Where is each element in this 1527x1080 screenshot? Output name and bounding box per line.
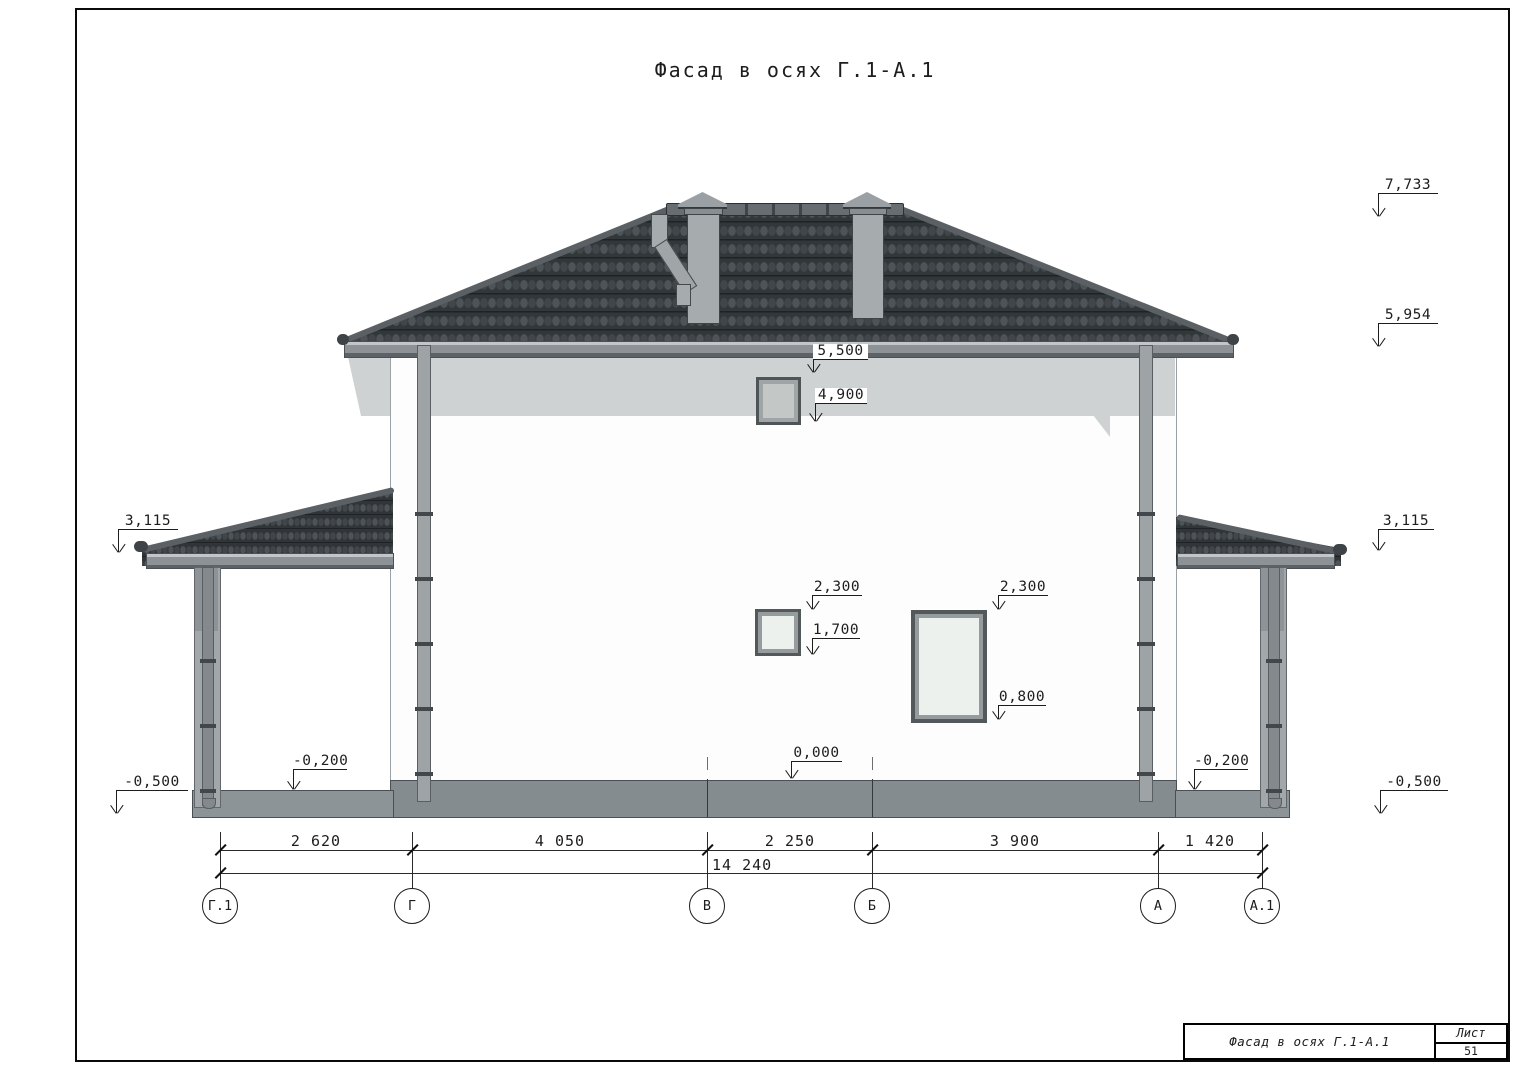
axis-extension-g1 (220, 832, 221, 888)
elevation-mark-canopy-right: 3,115 (1378, 514, 1434, 530)
axis-stub-v (707, 779, 708, 817)
elevation-mark-floor: 0,000 (791, 746, 842, 762)
elevation-value: -0,500 (116, 775, 188, 790)
window-large (911, 610, 987, 723)
window-large-glass (919, 618, 979, 715)
elevation-value: -0,200 (293, 754, 347, 769)
axis-label: Г (408, 898, 416, 914)
leader-line (812, 638, 860, 639)
down-arrow-icon (1189, 781, 1200, 789)
down-arrow-icon (993, 601, 1004, 609)
elevation-value: 2,300 (998, 580, 1048, 595)
axis-extension-g (412, 832, 413, 888)
title-block: Фасад в осях Г.1-А.1 Лист 51 (1183, 1023, 1508, 1060)
chimney-2 (852, 207, 884, 319)
axis-label: В (703, 898, 711, 914)
leader-line (998, 595, 1048, 596)
main-downspout-right (1139, 345, 1153, 802)
downspout-collars (415, 451, 433, 796)
attic-window-frame (759, 380, 798, 422)
leader-line (1194, 769, 1248, 770)
down-arrow-icon (288, 781, 299, 789)
elevation-mark-window2-sill: 0,800 (998, 690, 1046, 706)
axis-stub-b-dash (872, 757, 873, 770)
down-arrow-icon (807, 601, 818, 609)
down-arrow-icon (1373, 208, 1384, 216)
eave-shadow (429, 357, 1175, 416)
axis-label: Б (868, 898, 876, 914)
elevation-value: 0,000 (791, 746, 842, 761)
title-block-sheet-cell: Лист 51 (1436, 1025, 1506, 1058)
dim-segment-5: 1 420 (1170, 832, 1250, 848)
down-arrow-icon (810, 413, 821, 421)
porch-left-roof-tip (134, 541, 148, 552)
dim-segment-3: 2 250 (750, 832, 830, 848)
leader-line (815, 403, 867, 404)
elevation-mark-ridge: 7,733 (1378, 178, 1438, 194)
down-arrow-icon (786, 770, 797, 778)
leader-line (116, 790, 188, 791)
main-downspout-left (417, 345, 431, 802)
vent-pipe-outlet (676, 284, 691, 306)
porch-left-downspout (202, 567, 214, 806)
dim-segment-4: 3 900 (975, 832, 1055, 848)
leader-line (1380, 790, 1448, 791)
axis-extension-v (707, 832, 708, 888)
elevation-value: 5,500 (813, 344, 868, 359)
chimney-2-collar (849, 208, 887, 215)
axis-extension-b (872, 832, 873, 888)
elevation-mark-ground-left: -0,500 (116, 775, 188, 791)
downspout-collars (200, 598, 216, 798)
elevation-value: 5,954 (1378, 308, 1438, 323)
axis-extension-a1 (1262, 832, 1263, 888)
drawing-title: Фасад в осях Г.1-А.1 (560, 58, 1030, 82)
axis-label: А (1154, 898, 1162, 914)
axis-bubble-g1: Г.1 (202, 888, 238, 924)
porch-slab-left (192, 790, 394, 818)
elevation-mark-window1-head: 2,300 (812, 580, 862, 596)
leader-line (293, 769, 347, 770)
chimney-1-collar (684, 208, 723, 215)
elevation-value: 3,115 (1378, 514, 1434, 529)
elevation-mark-porch-floor-right: -0,200 (1194, 754, 1248, 770)
attic-window (756, 377, 801, 425)
elevation-value: -0,500 (1380, 775, 1448, 790)
elevation-value: -0,200 (1194, 754, 1248, 769)
downspout-collars (1137, 451, 1155, 796)
down-arrow-icon (993, 711, 1004, 719)
leader-line (998, 705, 1046, 706)
leader-line (118, 529, 178, 530)
porch-right-fascia (1177, 553, 1335, 569)
elevation-mark-window1-sill: 1,700 (812, 623, 860, 639)
sheet-label: Лист (1436, 1025, 1506, 1044)
sheet-number: 51 (1436, 1044, 1506, 1058)
down-arrow-icon (113, 544, 124, 552)
elevation-mark-main-eave: 5,954 (1378, 308, 1438, 324)
plinth (390, 780, 1177, 818)
axis-bubble-b: Б (854, 888, 890, 924)
axis-bubble-v: В (689, 888, 725, 924)
window-small-frame (758, 612, 798, 653)
down-arrow-icon (1373, 338, 1384, 346)
dim-segment-1: 2 620 (276, 832, 356, 848)
downspout-collars (1266, 598, 1282, 798)
down-arrow-icon (1373, 542, 1384, 550)
elevation-value: 0,800 (998, 690, 1046, 705)
down-arrow-icon (808, 364, 819, 372)
axis-bubble-a: А (1140, 888, 1176, 924)
down-arrow-icon (111, 805, 122, 813)
leader-line (1378, 323, 1438, 324)
axis-bubble-g: Г (394, 888, 430, 924)
porch-right-roof-tip (1333, 544, 1347, 555)
eave-end-left (337, 334, 349, 345)
axis-extension-a (1158, 832, 1159, 888)
elevation-value: 7,733 (1378, 178, 1438, 193)
elevation-value: 2,300 (812, 580, 862, 595)
elevation-value: 3,115 (118, 514, 178, 529)
attic-window-glass (763, 384, 794, 418)
facade-elevation-sheet: Фасад в осях Г.1-А.1 (0, 0, 1527, 1080)
down-arrow-icon (1375, 805, 1386, 813)
elevation-mark-porch-floor-left: -0,200 (293, 754, 347, 770)
elevation-value: 1,700 (812, 623, 860, 638)
leader-line (791, 761, 842, 762)
axis-bubble-a1: А.1 (1244, 888, 1280, 924)
title-block-name: Фасад в осях Г.1-А.1 (1185, 1025, 1436, 1058)
porch-left-fascia (146, 553, 394, 569)
window-small-glass (762, 616, 794, 649)
elevation-mark-ground-right: -0,500 (1380, 775, 1448, 791)
axis-stub-b (872, 779, 873, 817)
leader-line (1378, 529, 1434, 530)
eave-end-right (1227, 334, 1239, 345)
dim-total: 14 240 (712, 856, 812, 872)
porch-right-downspout-end (1268, 798, 1282, 809)
dimension-line-segments (220, 850, 1262, 851)
elevation-mark-attic-head: 5,500 (813, 344, 868, 360)
elevation-value: 4,900 (815, 388, 867, 403)
chimney-1 (687, 207, 720, 324)
elevation-mark-canopy-left: 3,115 (118, 514, 178, 530)
dim-segment-2: 4 050 (520, 832, 600, 848)
elevation-mark-window2-head: 2,300 (998, 580, 1048, 596)
leader-line (1378, 193, 1438, 194)
porch-left-downspout-end (202, 798, 216, 809)
leader-line (813, 359, 868, 360)
axis-stub-v-dash (707, 757, 708, 770)
leader-line (812, 595, 862, 596)
elevation-mark-attic-sill: 4,900 (815, 388, 867, 404)
window-small (755, 609, 801, 656)
window-large-frame (915, 614, 983, 719)
porch-right-downspout (1268, 567, 1280, 806)
axis-label: Г.1 (208, 898, 232, 914)
axis-label: А.1 (1250, 898, 1274, 914)
down-arrow-icon (807, 646, 818, 654)
main-eave-fascia (344, 341, 1234, 358)
